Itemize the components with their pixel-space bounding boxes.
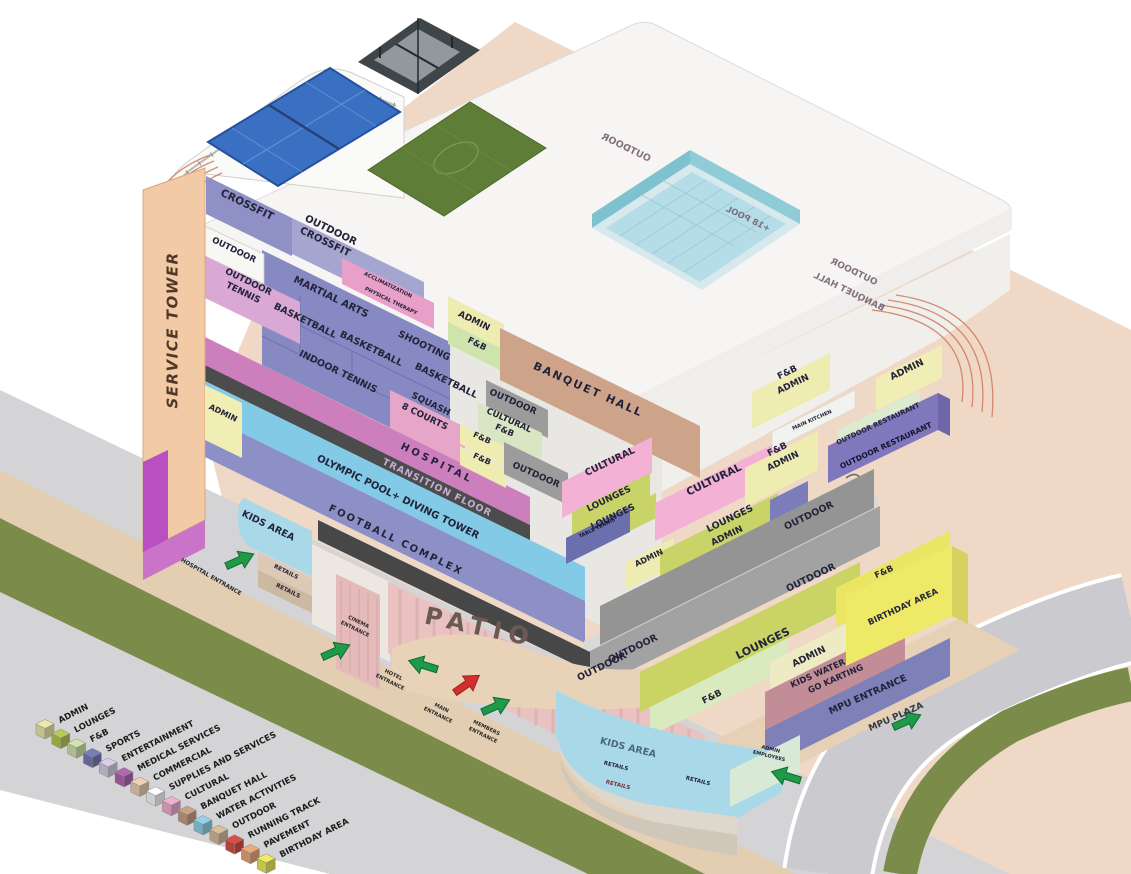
service-tower-label: SERVICE TOWER	[164, 251, 182, 408]
axonometric-diagram: KIDS WATER PARKGO KARTING SERVICE TOWERC…	[0, 0, 1131, 874]
